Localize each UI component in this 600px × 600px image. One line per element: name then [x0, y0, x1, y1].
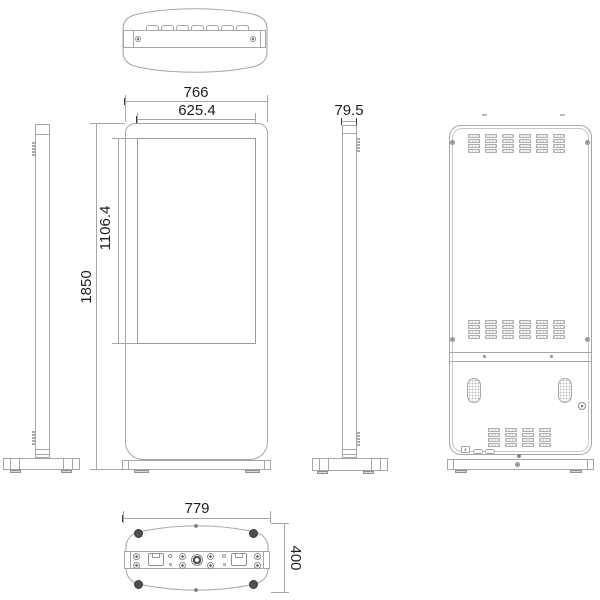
screw-icon [179, 562, 186, 569]
foot-pad [570, 470, 582, 473]
vent-slot [553, 330, 565, 334]
screw-icon [585, 337, 590, 342]
vent-slot [536, 325, 548, 329]
front-base-plate [122, 460, 271, 470]
vent-slot [505, 433, 517, 437]
base-plate-end-line [319, 458, 320, 471]
dimension-tick [341, 118, 342, 125]
mounting-bracket [231, 553, 247, 566]
vent-slot [536, 144, 548, 148]
screw-icon [517, 454, 521, 458]
power-switch [461, 446, 470, 453]
screw-mark [560, 114, 565, 116]
vent-slot [488, 433, 500, 437]
vent-slot [488, 443, 500, 447]
small-hole [223, 563, 226, 566]
vent-slot [468, 335, 480, 339]
screw-icon [207, 562, 214, 569]
dimension-label-overall-width: 766 [178, 85, 214, 101]
vent-slot [505, 438, 517, 442]
speaker-grille [467, 378, 481, 403]
side-port-marks [357, 432, 360, 446]
port-mark [357, 141, 360, 143]
screw-icon [194, 524, 198, 528]
vent-slot [553, 320, 565, 324]
vent-slot [502, 149, 514, 153]
vent-slot [468, 144, 480, 148]
vent-slot [468, 320, 480, 324]
port-mark [32, 440, 35, 442]
top-view-vent-band [123, 30, 266, 48]
vent-slot [536, 320, 548, 324]
vent-slot [468, 149, 480, 153]
port-mark [32, 145, 35, 147]
base-plate-end-line [380, 458, 381, 471]
port-mark [357, 435, 360, 437]
vent-slot [485, 335, 497, 339]
band-end-line [130, 551, 131, 569]
vent-slot [539, 443, 551, 447]
vent-slot [485, 134, 497, 138]
screw-icon [207, 553, 214, 560]
vent-slot [485, 330, 497, 334]
vent-slot [502, 144, 514, 148]
vent-slot [502, 325, 514, 329]
vent-slot [522, 433, 534, 437]
foot-pad [455, 470, 467, 473]
vent-slot [519, 144, 531, 148]
vent-slot [468, 139, 480, 143]
port-mark [32, 142, 35, 144]
base-plate-end-line [264, 460, 265, 470]
vent-slot [536, 335, 548, 339]
back-view-inner-line [452, 128, 589, 452]
left-base-plate [3, 458, 80, 470]
extension-line [270, 511, 271, 523]
vent-slot [502, 134, 514, 138]
screw-icon [133, 553, 140, 560]
vent-slot [502, 335, 514, 339]
screw-icon [450, 140, 455, 145]
vent-slot [539, 438, 551, 442]
lock-hole [578, 402, 586, 410]
base-plate-end-line [72, 458, 73, 470]
screw-icon [194, 588, 198, 592]
small-hole [168, 554, 172, 558]
vent-slot [519, 134, 531, 138]
vent-slot [502, 320, 514, 324]
band-end-line [133, 30, 134, 48]
port-mark [357, 432, 360, 434]
extension-line [90, 469, 122, 470]
vent-slot [553, 325, 565, 329]
vent-slot [536, 139, 548, 143]
screw-icon [179, 553, 186, 560]
port-mark [32, 434, 35, 436]
screen-panel [137, 138, 256, 344]
side-port-marks [32, 142, 35, 156]
port-mark [32, 443, 35, 445]
back-base-plate [447, 459, 594, 470]
foot-pad [317, 471, 328, 474]
vent-slot [505, 443, 517, 447]
vent-slot [485, 149, 497, 153]
vent-slot [502, 139, 514, 143]
vent-grid-top [468, 134, 565, 153]
extension-line [112, 343, 137, 344]
kiosk-dimension-drawing: 766 625.4 1850 1106.4 79.5 [0, 0, 600, 600]
foot-caster [134, 529, 143, 538]
base-plate-end-line [453, 459, 454, 470]
vent-slot [485, 144, 497, 148]
screw-icon [550, 355, 553, 358]
back-divider-line [450, 361, 591, 362]
port-mark [32, 431, 35, 433]
vent-slot [553, 144, 565, 148]
vent-slot [502, 330, 514, 334]
vent-slot [468, 325, 480, 329]
dimension-line [96, 123, 97, 470]
side-cap-line [35, 134, 50, 135]
back-divider-line [450, 352, 591, 353]
base-plate-end-line [63, 458, 64, 470]
vent-slot [519, 320, 531, 324]
extension-line [112, 138, 137, 139]
foot-pad [10, 470, 21, 473]
extension-line [90, 123, 125, 124]
vent-slot [536, 149, 548, 153]
port-mark [32, 148, 35, 150]
base-plate-end-line [587, 459, 588, 470]
dimension-line [123, 518, 271, 519]
screw-mark [482, 114, 487, 116]
screw-icon [250, 36, 256, 42]
side-seam-line [342, 454, 357, 455]
foot-caster [249, 580, 258, 589]
screw-icon [515, 462, 520, 467]
dimension-label-base-depth: 400 [287, 536, 303, 580]
foot-pad [134, 470, 149, 473]
side-port-marks [32, 431, 35, 445]
vent-slot [539, 428, 551, 432]
dimension-line [137, 119, 256, 120]
screw-icon [133, 562, 140, 569]
side-cap-line [342, 133, 357, 134]
vent-slot [539, 433, 551, 437]
dimension-label-overall-height: 1850 [79, 265, 95, 309]
io-port [473, 449, 483, 454]
right-side-view-body [342, 125, 357, 458]
mounting-bracket [148, 553, 164, 566]
side-port-marks [357, 138, 360, 152]
side-seam-line [35, 449, 50, 450]
extension-line [267, 95, 268, 122]
port-mark [357, 444, 360, 446]
base-plate-end-line [19, 458, 20, 470]
vent-slot [553, 149, 565, 153]
vent-slot [519, 139, 531, 143]
port-mark [357, 147, 360, 149]
extension-line [123, 511, 124, 523]
vent-grid-bottom [488, 428, 551, 447]
right-base-plate [312, 458, 388, 471]
vent-slot [488, 428, 500, 432]
base-plate-end-line [328, 458, 329, 471]
vent-slot [505, 428, 517, 432]
side-seam-line [342, 449, 357, 450]
foot-pad [363, 471, 374, 474]
screw-icon [450, 337, 455, 342]
base-plate-end-line [128, 460, 129, 470]
vent-slot [553, 139, 565, 143]
vent-slot [468, 134, 480, 138]
base-plate-end-line [371, 458, 372, 471]
vent-slot [485, 139, 497, 143]
extension-line [125, 95, 126, 122]
band-end-line [260, 30, 261, 48]
vent-slot [519, 325, 531, 329]
extension-line [271, 592, 289, 593]
dimension-line [342, 121, 357, 122]
left-side-view-body [35, 124, 50, 458]
small-hole [169, 563, 172, 566]
vent-slot [522, 438, 534, 442]
vent-slot [519, 149, 531, 153]
port-mark [32, 437, 35, 439]
dimension-label-base-width: 779 [177, 501, 217, 517]
center-cap [191, 554, 203, 566]
vent-slot [519, 335, 531, 339]
foot-pad [61, 470, 72, 473]
vent-slot [468, 330, 480, 334]
dimension-tick [356, 118, 357, 125]
dimension-label-depth: 79.5 [327, 103, 371, 119]
screw-icon [254, 553, 261, 560]
port-mark [357, 441, 360, 443]
side-seam-line [35, 454, 50, 455]
vent-slot [536, 330, 548, 334]
screw-icon [585, 140, 590, 145]
port-mark [357, 438, 360, 440]
extension-line [271, 523, 289, 524]
vent-slot [485, 325, 497, 329]
vent-grid-middle [468, 320, 565, 339]
vent-slot [485, 320, 497, 324]
vent-slot [553, 335, 565, 339]
vent-slot [553, 134, 565, 138]
foot-pad [245, 470, 260, 473]
base-plate-end-line [10, 458, 11, 470]
screw-icon [254, 562, 261, 569]
vent-slot [522, 428, 534, 432]
dimension-line [118, 138, 119, 344]
speaker-grille [558, 378, 572, 403]
port-mark [357, 138, 360, 140]
dimension-label-screen-width: 625.4 [175, 103, 219, 119]
foot-caster [134, 580, 143, 589]
vent-slot [488, 438, 500, 442]
small-hole [222, 554, 226, 558]
port-mark [357, 150, 360, 152]
dimension-line [284, 523, 285, 593]
vent-slot [536, 134, 548, 138]
band-end-line [263, 551, 264, 569]
port-mark [357, 144, 360, 146]
port-mark [32, 151, 35, 153]
port-mark [32, 154, 35, 156]
dimension-label-screen-height: 1106.4 [98, 202, 114, 254]
screw-icon [135, 36, 141, 42]
foot-caster [249, 529, 258, 538]
vent-slot [519, 330, 531, 334]
vent-slot [522, 443, 534, 447]
io-port [485, 449, 495, 454]
screw-icon [483, 355, 486, 358]
